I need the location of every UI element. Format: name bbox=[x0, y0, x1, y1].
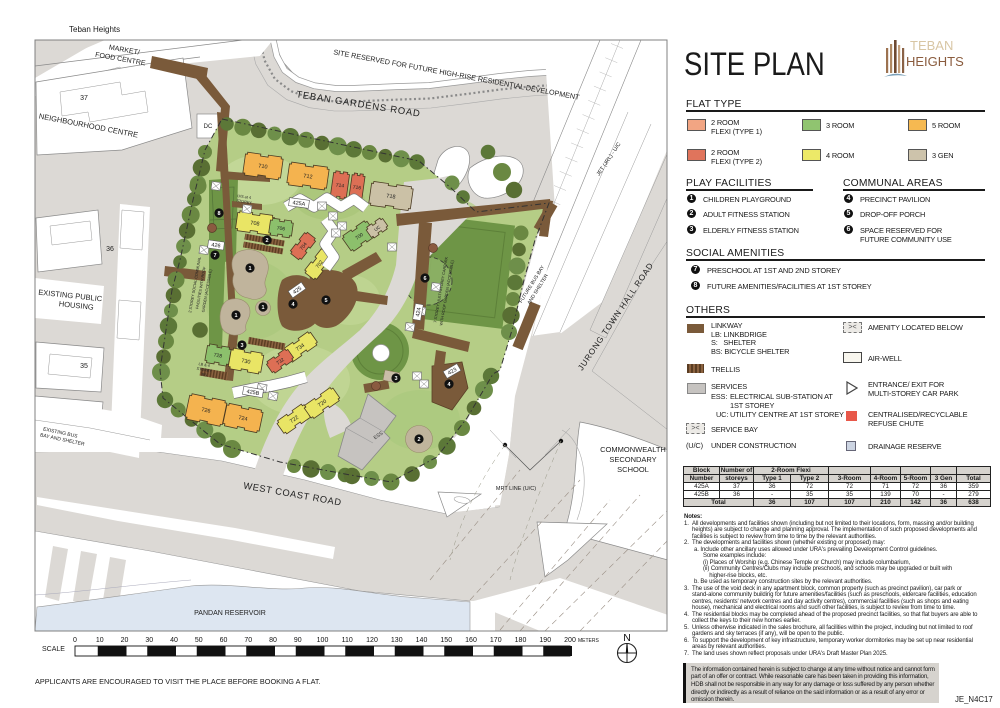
svg-text:5: 5 bbox=[324, 298, 327, 304]
svg-text:N: N bbox=[623, 632, 631, 644]
svg-text:110: 110 bbox=[342, 637, 353, 644]
svg-text:HEIGHTS: HEIGHTS bbox=[906, 54, 964, 69]
svg-text:1: 1 bbox=[234, 313, 237, 319]
svg-text:1: 1 bbox=[261, 305, 264, 311]
svg-text:120: 120 bbox=[366, 637, 378, 644]
svg-text:190: 190 bbox=[539, 637, 551, 644]
svg-text:7: 7 bbox=[213, 253, 216, 259]
svg-text:160: 160 bbox=[465, 637, 477, 644]
svg-text:8: 8 bbox=[217, 211, 220, 217]
svg-text:MRT LINE (U/C): MRT LINE (U/C) bbox=[496, 486, 536, 492]
svg-text:200: 200 bbox=[564, 637, 576, 644]
svg-text:1: 1 bbox=[248, 266, 251, 272]
svg-text:40: 40 bbox=[170, 637, 178, 644]
svg-text:716: 716 bbox=[352, 184, 361, 191]
svg-text:PANDAN RESERVOIR: PANDAN RESERVOIR bbox=[194, 610, 266, 617]
svg-text:90: 90 bbox=[294, 637, 302, 644]
svg-text:0: 0 bbox=[73, 637, 77, 644]
svg-text:150: 150 bbox=[440, 637, 452, 644]
svg-text:710: 710 bbox=[258, 163, 268, 170]
svg-text:DC: DC bbox=[204, 124, 213, 130]
svg-text:2: 2 bbox=[265, 238, 268, 244]
svg-text:80: 80 bbox=[269, 637, 277, 644]
svg-text:718: 718 bbox=[386, 193, 396, 200]
svg-text:2: 2 bbox=[417, 437, 420, 443]
svg-text:SECONDARY: SECONDARY bbox=[609, 455, 656, 464]
svg-text:37: 37 bbox=[80, 95, 88, 102]
svg-text:130: 130 bbox=[391, 637, 403, 644]
svg-text:SCHOOL: SCHOOL bbox=[617, 465, 649, 474]
svg-text:COMMONWEALTH: COMMONWEALTH bbox=[600, 445, 666, 454]
svg-text:30: 30 bbox=[145, 637, 153, 644]
svg-text:36: 36 bbox=[106, 246, 114, 253]
svg-text:10: 10 bbox=[96, 637, 104, 644]
svg-text:426: 426 bbox=[211, 242, 221, 249]
svg-text:35: 35 bbox=[80, 363, 88, 370]
svg-text:3: 3 bbox=[240, 343, 243, 349]
svg-text:TEBAN: TEBAN bbox=[910, 38, 953, 53]
svg-text:70: 70 bbox=[244, 637, 252, 644]
svg-text:METERS: METERS bbox=[578, 638, 600, 644]
svg-text:140: 140 bbox=[416, 637, 428, 644]
svg-text:180: 180 bbox=[515, 637, 527, 644]
svg-text:712: 712 bbox=[303, 173, 313, 180]
svg-text:170: 170 bbox=[490, 637, 502, 644]
svg-text:3: 3 bbox=[394, 376, 397, 382]
svg-text:60: 60 bbox=[220, 637, 228, 644]
svg-text:100: 100 bbox=[317, 637, 329, 644]
svg-text:714: 714 bbox=[335, 182, 344, 189]
svg-text:6: 6 bbox=[423, 276, 426, 282]
svg-text:706: 706 bbox=[276, 225, 285, 232]
svg-text:20: 20 bbox=[121, 637, 129, 644]
svg-text:708: 708 bbox=[250, 220, 260, 227]
svg-text:50: 50 bbox=[195, 637, 203, 644]
